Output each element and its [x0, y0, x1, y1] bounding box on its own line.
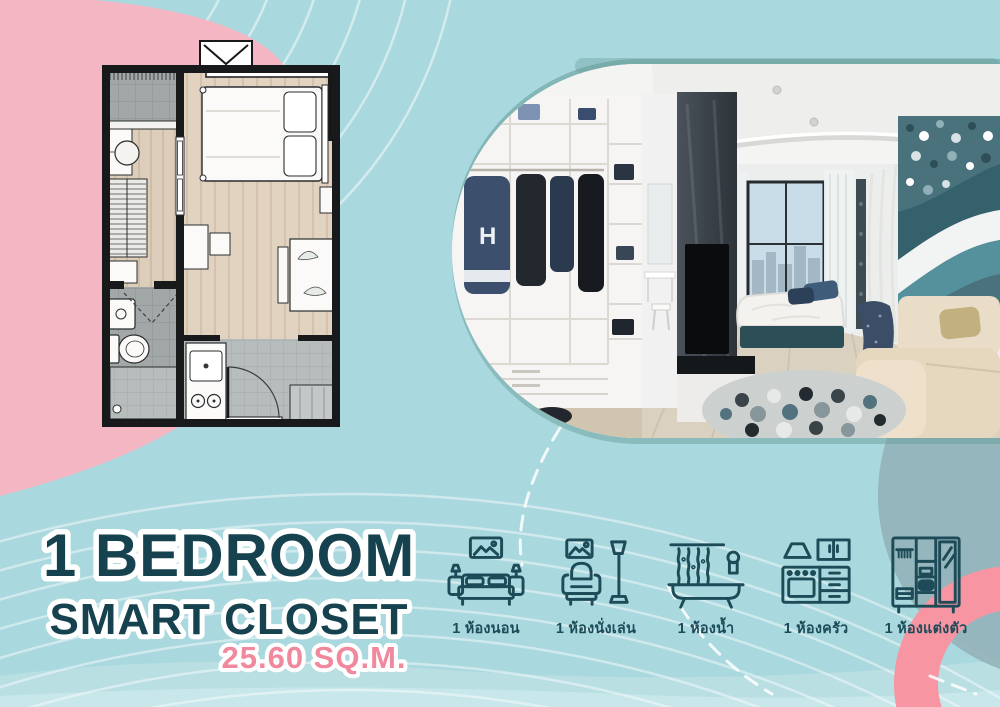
title-line1: 1 BEDROOM	[43, 522, 415, 589]
legend-label: 1 ห้องน้ำ	[678, 617, 735, 640]
room-legend: 1 ห้องนอน 1 ห้องนั่งเล่น	[436, 536, 976, 640]
closet-counter	[106, 121, 180, 129]
legend-item-bedroom: 1 ห้องนอน	[436, 536, 536, 640]
sliding-door	[176, 137, 184, 215]
wardrobe-icon	[886, 536, 966, 614]
legend-label: 1 ห้องนั่งเล่น	[556, 617, 636, 640]
legend-label: 1 ห้องแต่งตัว	[885, 617, 968, 640]
kitchen-icon	[776, 536, 856, 614]
hanging-garment	[578, 174, 604, 292]
area-text: 25.60 SQ.M.	[221, 640, 406, 675]
legend-item-living-room: 1 ห้องนั่งเล่น	[546, 536, 646, 640]
balcony-door-marker	[200, 41, 252, 67]
jacket-letter: H	[479, 223, 496, 250]
kitchen-counter	[186, 343, 226, 421]
interior-photo: H	[452, 64, 1000, 438]
legend-item-kitchen: 1 ห้องครัว	[766, 536, 866, 640]
legend-item-bathroom: 1 ห้องน้ำ	[656, 536, 756, 640]
legend-label: 1 ห้องครัว	[784, 617, 849, 640]
bed-icon	[446, 536, 526, 614]
legend-item-dressing-room: 1 ห้องแต่งตัว	[876, 536, 976, 640]
wave-feature-wall	[898, 116, 1000, 322]
clothes-rack	[107, 179, 147, 257]
title-block: 1 BEDROOM SMART CLOSET 25.60 SQ.M.	[14, 496, 454, 682]
title-line2: SMART CLOSET	[49, 595, 408, 644]
varsity-jacket: H	[464, 176, 510, 294]
tv-screen	[685, 244, 729, 354]
toilet	[106, 335, 149, 363]
tv-console-top	[677, 356, 755, 374]
interior-photo-illustration: H	[452, 64, 1000, 438]
closet-floor	[106, 73, 180, 127]
floor-plan	[101, 37, 341, 436]
vanity-corner	[642, 94, 677, 408]
stool	[115, 141, 139, 165]
downlight	[810, 118, 818, 126]
bathtub-icon	[666, 536, 746, 614]
sofa-pillow	[939, 306, 982, 340]
desk	[182, 225, 208, 269]
hanging-garment	[516, 174, 546, 286]
shower-area	[110, 367, 179, 419]
desk-stool	[210, 233, 230, 255]
cabinet	[107, 261, 137, 283]
armchair-icon	[556, 536, 636, 614]
legend-label: 1 ห้องนอน	[452, 617, 520, 640]
dining-table	[278, 239, 334, 311]
floor-plan-drawing	[101, 37, 341, 431]
hanging-garment	[550, 176, 574, 272]
bathroom-sink	[108, 299, 135, 329]
downlight	[773, 86, 781, 94]
bed	[200, 85, 328, 183]
poster-canvas: H	[0, 0, 1000, 707]
